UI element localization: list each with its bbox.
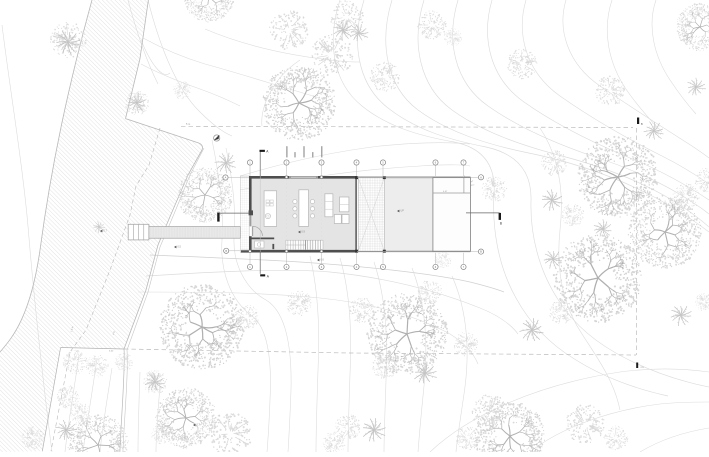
svg-text:A: A	[225, 176, 227, 180]
svg-text:5 m: 5 m	[186, 123, 190, 126]
svg-text:B: B	[500, 222, 502, 226]
svg-text:A: A	[480, 175, 482, 179]
svg-text:B: B	[480, 250, 482, 254]
svg-text:UP: UP	[401, 210, 405, 213]
svg-text:B: B	[225, 249, 227, 253]
